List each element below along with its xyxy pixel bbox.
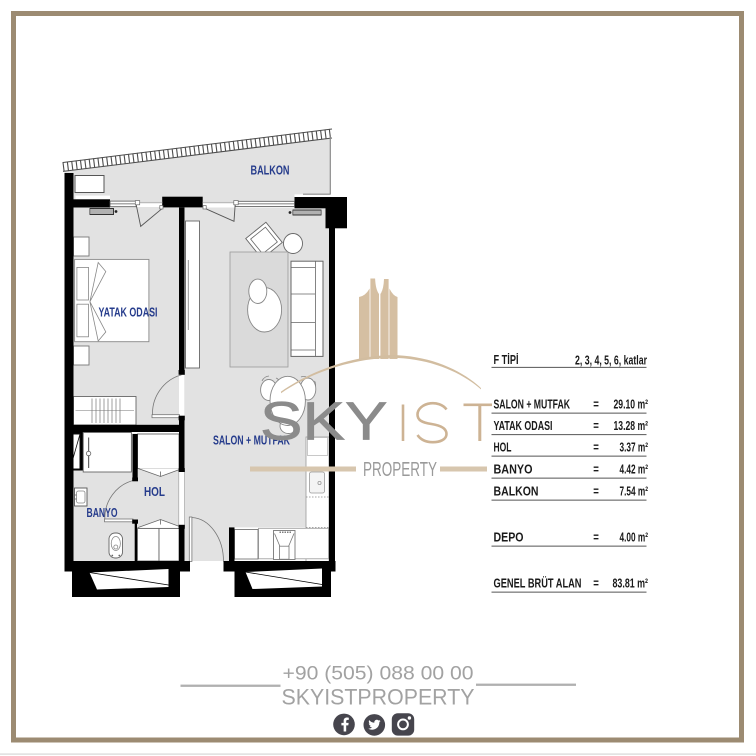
svg-text:YATAK ODASI: YATAK ODASI — [99, 306, 158, 320]
svg-text:BANYO: BANYO — [87, 506, 118, 520]
svg-text:7.54 m²: 7.54 m² — [620, 484, 649, 499]
svg-text:YATAK ODASI: YATAK ODASI — [494, 418, 553, 433]
svg-text:=: = — [593, 418, 599, 433]
svg-text:=: = — [593, 440, 599, 455]
svg-text:SKYISTPROPERTY: SKYISTPROPERTY — [282, 685, 475, 710]
svg-text:13.28 m²: 13.28 m² — [614, 418, 649, 433]
svg-text:2, 3, 4, 5, 6, katlar: 2, 3, 4, 5, 6, katlar — [575, 352, 647, 367]
svg-text:GENEL BRÜT ALAN: GENEL BRÜT ALAN — [494, 576, 582, 591]
svg-text:+90 (505) 088 00 00: +90 (505) 088 00 00 — [283, 663, 474, 685]
svg-text:BALKON: BALKON — [251, 164, 290, 178]
svg-text:SKY: SKY — [260, 392, 388, 452]
svg-text:3.37 m²: 3.37 m² — [620, 440, 649, 455]
svg-text:4.00 m²: 4.00 m² — [620, 530, 649, 545]
svg-text:PROPERTY: PROPERTY — [363, 459, 437, 481]
svg-text:=: = — [593, 484, 599, 499]
svg-text:=: = — [593, 462, 599, 477]
svg-text:F TİPİ: F TİPİ — [494, 352, 519, 367]
svg-text:HOL: HOL — [144, 485, 165, 499]
svg-text:=: = — [593, 397, 599, 412]
svg-text:SALON + MUTFAK: SALON + MUTFAK — [494, 397, 571, 412]
svg-text:83.81 m²: 83.81 m² — [613, 576, 649, 591]
svg-text:29.10 m²: 29.10 m² — [614, 397, 649, 412]
svg-text:=: = — [593, 576, 599, 591]
svg-text:BALKON: BALKON — [494, 484, 539, 499]
svg-text:4.42 m²: 4.42 m² — [620, 462, 649, 477]
svg-text:BANYO: BANYO — [494, 462, 533, 477]
svg-text:=: = — [593, 530, 599, 545]
svg-text:HOL: HOL — [494, 440, 512, 455]
svg-text:DEPO: DEPO — [494, 530, 524, 545]
